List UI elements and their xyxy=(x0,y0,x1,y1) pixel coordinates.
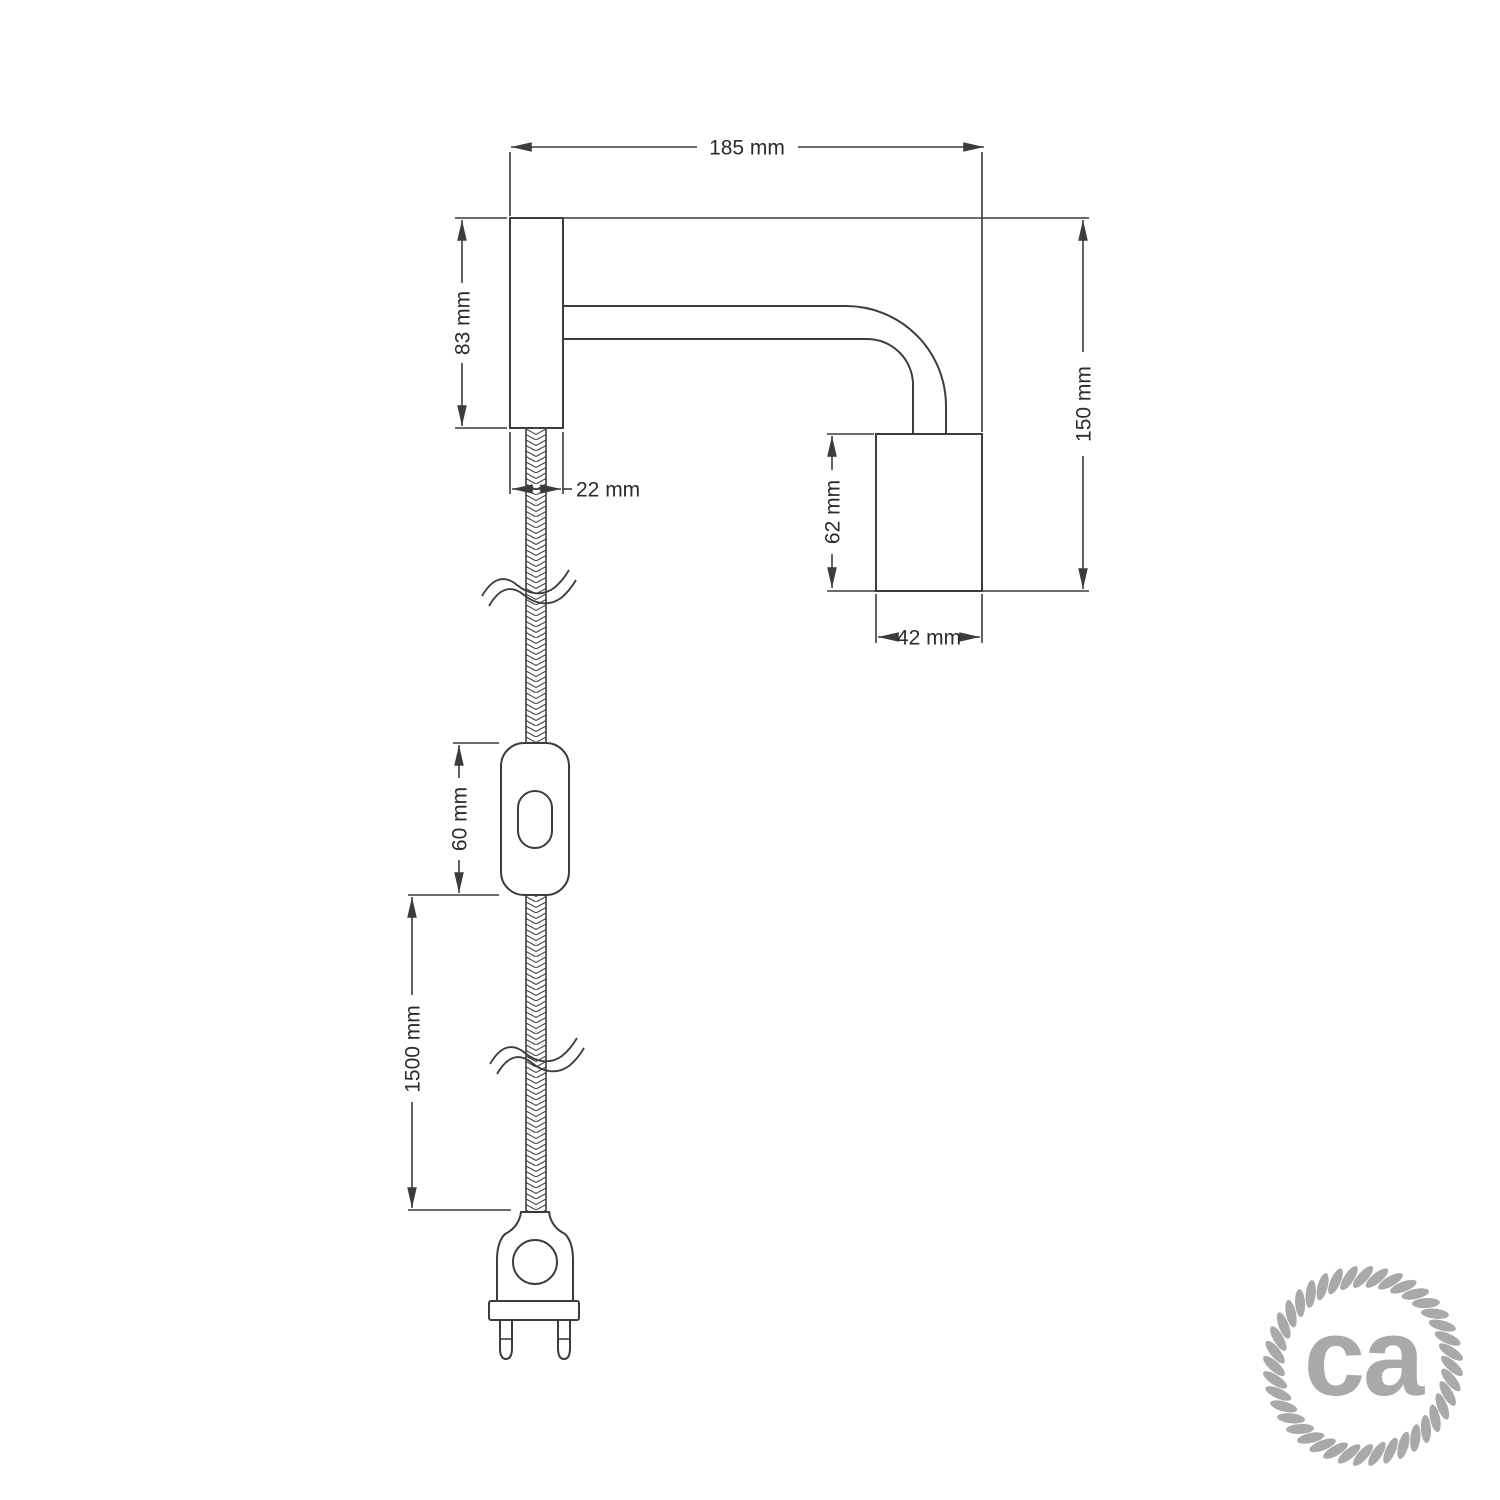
dimension-total-height: 150 mm xyxy=(1072,220,1095,589)
arm-tube-inner-line xyxy=(563,339,913,434)
lamp-holder-socket xyxy=(876,434,982,591)
cable-braid-texture xyxy=(526,428,546,743)
switch-body xyxy=(501,743,569,895)
rope-strand xyxy=(1409,1424,1422,1453)
lamp-holder-outline xyxy=(876,434,982,591)
plug-base-flange xyxy=(489,1301,579,1320)
logo-text: ca xyxy=(1304,1296,1425,1419)
rope-strand xyxy=(1277,1412,1306,1425)
dimension-wall-mount-height: 83 mm xyxy=(451,220,474,426)
dimension-switch-length: 60 mm xyxy=(448,745,471,893)
rope-strand xyxy=(1286,1423,1314,1434)
dimension-socket-width: 42 mm xyxy=(878,626,980,649)
dimension-cable-length: 1500 mm xyxy=(401,897,424,1208)
dim-label-wall-mount-width: 22 mm xyxy=(576,478,640,501)
inline-switch xyxy=(501,743,569,895)
rope-strand xyxy=(1269,1398,1299,1415)
wall-mount-plate xyxy=(510,218,563,428)
cable-braid-texture xyxy=(526,895,546,1212)
rope-strand xyxy=(1427,1317,1457,1334)
dim-label-socket-height: 62 mm xyxy=(821,480,844,544)
rope-strand xyxy=(1395,1430,1412,1460)
wall-lamp-dimension-drawing: 185 mm 83 mm 22 mm 150 mm 62 mm 42 mm 60… xyxy=(0,0,1500,1500)
dim-label-total-width: 185 mm xyxy=(709,136,785,159)
dimension-total-width: 185 mm xyxy=(511,136,984,159)
dim-label-switch-length: 60 mm xyxy=(448,787,471,851)
dimension-socket-height: 62 mm xyxy=(821,436,844,588)
dim-label-socket-width: 42 mm xyxy=(897,626,961,649)
dim-label-cable-length: 1500 mm xyxy=(401,1005,424,1093)
dim-label-total-height: 150 mm xyxy=(1072,366,1095,442)
dim-label-wall-mount-height: 83 mm xyxy=(451,291,474,355)
technical-drawing-canvas: 185 mm 83 mm 22 mm 150 mm 62 mm 42 mm 60… xyxy=(0,0,1500,1500)
wall-plate-outline xyxy=(510,218,563,428)
braided-cable-upper xyxy=(526,428,546,743)
braided-cable-lower xyxy=(526,895,546,1212)
rope-strand xyxy=(1421,1307,1450,1320)
two-pin-power-plug xyxy=(489,1212,579,1359)
brand-logo: ca xyxy=(1260,1263,1465,1468)
arm-tube-outer-line xyxy=(563,306,946,434)
plug-body xyxy=(497,1212,573,1301)
arm-tube xyxy=(563,306,946,434)
